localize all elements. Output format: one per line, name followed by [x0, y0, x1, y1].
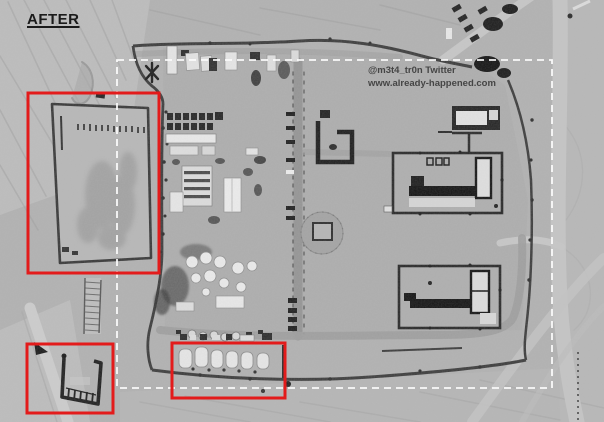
- grain-overlay: [0, 0, 604, 422]
- watermark-website: www.already-happened.com: [368, 77, 496, 90]
- watermark-twitter-handle: @m3t4_tr0n Twitter: [368, 64, 496, 77]
- after-label: AFTER: [27, 11, 80, 28]
- satellite-scene: [0, 0, 604, 422]
- watermark: @m3t4_tr0n Twitter www.already-happened.…: [368, 64, 496, 90]
- satellite-after-image: AFTER @m3t4_tr0n Twitter www.already-hap…: [0, 0, 604, 422]
